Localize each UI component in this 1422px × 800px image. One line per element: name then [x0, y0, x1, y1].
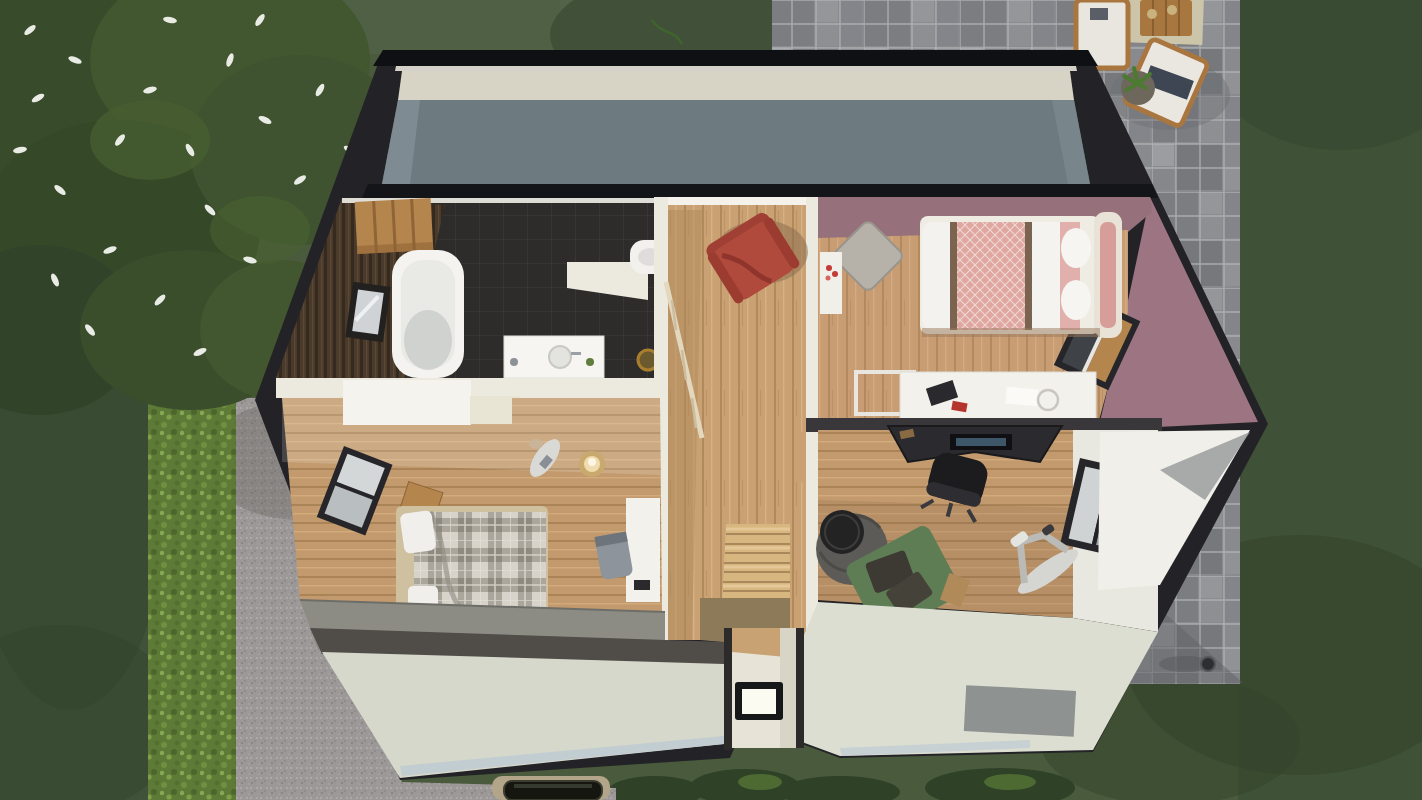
desk-item — [634, 580, 650, 590]
landing-hallway — [666, 197, 808, 692]
bush-highlight — [738, 774, 782, 790]
car-windshield — [514, 784, 592, 788]
pillow — [1061, 280, 1091, 320]
bed-single-plaid — [396, 506, 548, 612]
bathroom-mirror — [345, 282, 390, 343]
nub-wall-east — [796, 628, 804, 748]
attic-wall-top — [398, 71, 1074, 100]
flowers-red — [826, 265, 832, 271]
wardrobe-white — [343, 380, 471, 425]
car-roof — [504, 781, 602, 800]
bed-pillow — [399, 510, 436, 554]
wall-bathroom-south — [276, 378, 668, 398]
monitor-screen — [956, 438, 1006, 446]
headboard-tuft — [1100, 222, 1116, 328]
floorplan-render — [0, 0, 1422, 800]
sink-bowl — [549, 346, 571, 368]
bed-trim — [1025, 222, 1032, 330]
canopy-highlight — [210, 196, 310, 264]
chair-pillow — [1090, 8, 1108, 20]
vanity-item — [510, 358, 518, 366]
facade-panel-gray — [964, 685, 1076, 737]
bathroom — [276, 198, 670, 378]
table-top — [820, 252, 842, 314]
bush-highlight — [984, 774, 1036, 790]
bedroom-plaid — [282, 380, 665, 655]
figure-head — [529, 439, 543, 449]
attic-roof — [362, 71, 1158, 198]
side-table-black — [820, 510, 864, 554]
skylight — [735, 682, 783, 720]
panel — [964, 685, 1076, 737]
lamp-head — [1201, 657, 1215, 671]
table-item — [1147, 9, 1157, 19]
flowers-red — [832, 271, 838, 277]
quilt-texture — [957, 222, 1025, 330]
landing-wall-edge — [668, 197, 806, 205]
roof-top-band — [373, 50, 1098, 66]
bathtub — [392, 250, 464, 378]
floor-separator-wall — [362, 184, 1158, 198]
vanity-sink — [504, 336, 604, 378]
terrace-table — [1140, 0, 1192, 36]
dresser-cream — [470, 396, 512, 424]
pillow — [1061, 228, 1091, 268]
scene-canvas — [0, 0, 1422, 800]
bedside-table-white — [820, 252, 842, 314]
table-item — [1167, 5, 1177, 15]
ceiling-edge-highlight — [395, 66, 1077, 71]
bed-double — [920, 212, 1122, 338]
parked-car — [492, 776, 610, 800]
house-cutaway — [255, 50, 1268, 780]
papers — [1005, 387, 1038, 407]
stairwell-nub — [724, 628, 804, 750]
canopy-highlight — [90, 100, 210, 180]
bed-shadow — [922, 328, 1100, 337]
bed-trim — [950, 222, 957, 330]
nub-wall-west — [724, 628, 732, 750]
attic-roof-slope — [382, 100, 1090, 184]
vanity-plant — [586, 358, 594, 366]
flowers-red — [826, 276, 831, 281]
faucet — [571, 352, 581, 355]
bed-runner-white — [1032, 222, 1060, 330]
terrace-lamp — [1159, 656, 1215, 672]
tub-shadow — [404, 310, 452, 370]
lamp-hotspot — [588, 458, 596, 466]
bathroom-shelf — [355, 198, 434, 254]
skylight-glass — [742, 689, 776, 714]
floor-lamp — [579, 451, 605, 477]
wall-opening — [794, 432, 806, 482]
